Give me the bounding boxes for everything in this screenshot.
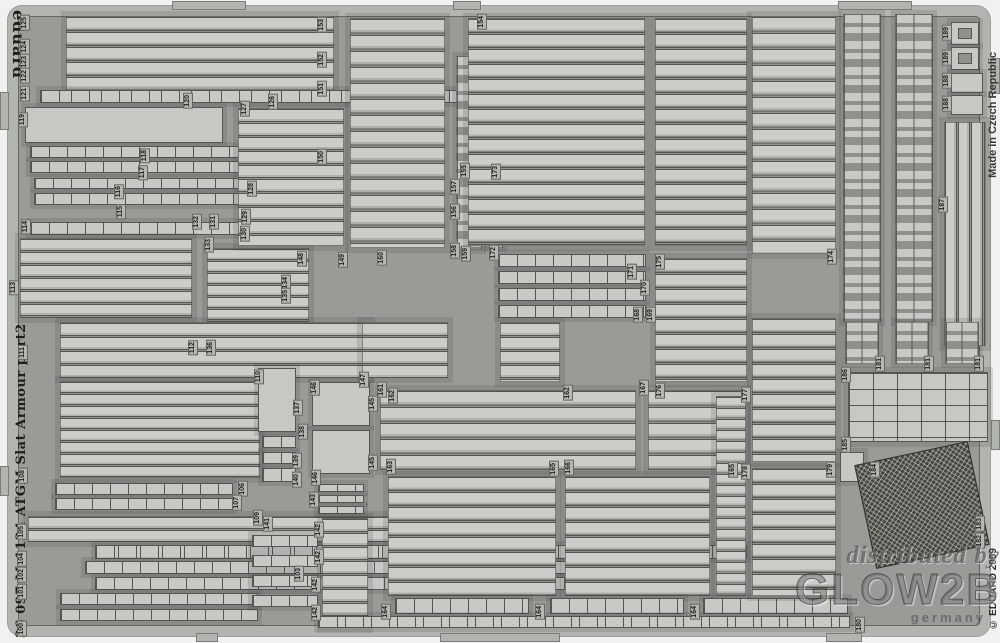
part-number-label: 130 xyxy=(240,226,250,242)
part-number-label: 162 xyxy=(563,385,573,401)
part-number-label: 160 xyxy=(377,250,387,266)
part-number-label: 153 xyxy=(317,17,327,33)
part-number-label: 145 xyxy=(368,455,378,471)
labels-layer: 1251241231221211201191181171161151141131… xyxy=(0,0,1000,643)
part-number-label: 175 xyxy=(655,254,665,270)
part-number-label: 121 xyxy=(20,86,30,102)
part-number-label: 147 xyxy=(359,372,369,388)
part-number-label: 117 xyxy=(138,165,148,180)
part-number-label: 131 xyxy=(209,214,219,230)
part-number-label: 164 xyxy=(535,604,545,620)
part-number-label: 181 xyxy=(974,356,984,372)
part-number-label: 115 xyxy=(116,204,126,219)
part-number-label: 161 xyxy=(377,382,387,398)
part-number-label: 146 xyxy=(311,470,321,486)
part-number-label: 184 xyxy=(870,462,880,478)
part-number-label: 128 xyxy=(247,181,257,197)
part-number-label: 114 xyxy=(21,219,31,234)
part-number-label: 180 xyxy=(855,617,865,633)
part-number-label: 143 xyxy=(309,492,319,508)
part-number-label: 100 xyxy=(17,621,27,637)
part-number-label: 135 xyxy=(281,288,291,304)
part-number-label: 155 xyxy=(460,163,470,179)
part-number-label: 104 xyxy=(17,551,27,567)
part-number-label: 146 xyxy=(310,380,320,396)
part-number-label: 118 xyxy=(140,148,150,163)
part-number-label: 189 xyxy=(942,50,952,66)
part-number-label: 188 xyxy=(942,96,952,112)
part-number-label: 105 xyxy=(17,524,27,540)
part-number-label: 127 xyxy=(240,101,250,117)
part-number-label: 181 xyxy=(924,356,934,372)
part-number-label: 157 xyxy=(450,179,460,195)
part-number-label: 142 xyxy=(311,577,321,593)
part-number-label: 120 xyxy=(183,93,193,109)
part-number-label: 129 xyxy=(241,209,251,225)
part-number-label: 183 xyxy=(975,516,985,532)
part-number-label: 101 xyxy=(17,584,27,600)
part-number-label: 148 xyxy=(297,251,307,267)
part-number-label: 102 xyxy=(17,567,27,583)
part-number-label: 169 xyxy=(646,307,656,323)
part-number-label: 188 xyxy=(942,73,952,89)
part-number-label: 119 xyxy=(18,112,28,127)
part-number-label: 158 xyxy=(450,243,460,259)
part-number-label: 173 xyxy=(491,164,501,180)
part-number-label: 152 xyxy=(317,52,327,68)
part-number-label: 176 xyxy=(655,383,665,399)
part-number-label: 164 xyxy=(381,604,391,620)
part-number-label: 137 xyxy=(293,400,303,416)
part-number-label: 179 xyxy=(826,462,836,478)
part-number-label: 159 xyxy=(461,246,471,262)
part-number-label: 112 xyxy=(188,340,198,355)
part-number-label: 133 xyxy=(204,237,214,253)
part-number-label: 116 xyxy=(114,184,124,199)
part-number-label: 110 xyxy=(254,369,264,384)
part-number-label: 174 xyxy=(827,249,837,265)
part-number-label: 145 xyxy=(368,396,378,412)
part-number-label: 164 xyxy=(690,604,700,620)
part-number-label: 109 xyxy=(253,510,263,526)
part-number-label: 113 xyxy=(9,280,19,295)
part-number-label: 108 xyxy=(18,468,28,484)
part-number-label: 171 xyxy=(627,264,637,280)
part-number-label: 150 xyxy=(317,149,327,165)
part-number-label: 189 xyxy=(942,25,952,41)
part-number-label: 136 xyxy=(206,340,216,356)
part-number-label: 138 xyxy=(298,424,308,440)
part-number-label: 166 xyxy=(564,460,574,476)
part-number-label: 142 xyxy=(314,549,324,565)
part-number-label: 167 xyxy=(639,380,649,396)
part-number-label: 122 xyxy=(20,68,30,84)
part-number-label: 149 xyxy=(338,252,348,268)
made-in-text: Made in Czech Republic xyxy=(987,52,999,178)
part-number-label: 103 xyxy=(294,566,304,582)
part-number-label: 178 xyxy=(741,464,751,480)
part-number-label: 154 xyxy=(477,14,487,30)
part-number-label: 168 xyxy=(633,307,643,323)
part-number-label: 124 xyxy=(20,39,30,55)
part-number-label: 182 xyxy=(975,533,985,549)
part-number-label: 156 xyxy=(450,204,460,220)
part-number-label: 185 xyxy=(841,437,851,453)
part-number-label: 151 xyxy=(317,81,327,97)
part-number-label: 142 xyxy=(314,522,324,538)
part-number-label: 111 xyxy=(18,345,28,360)
part-number-label: 172 xyxy=(489,245,499,261)
part-number-label: 181 xyxy=(875,356,885,372)
part-number-label: 139 xyxy=(292,453,302,469)
copyright-text: © EDUARD 2009 xyxy=(988,548,999,630)
part-number-label: 132 xyxy=(192,214,202,230)
part-number-label: 165 xyxy=(728,462,738,478)
part-number-label: 107 xyxy=(232,495,242,511)
part-number-label: 186 xyxy=(841,367,851,383)
part-number-label: 125 xyxy=(20,15,30,31)
part-number-label: 187 xyxy=(938,197,948,213)
part-number-label: 126 xyxy=(268,94,278,110)
part-number-label: 140 xyxy=(292,472,302,488)
part-number-label: 177 xyxy=(741,387,751,403)
part-number-label: 165 xyxy=(549,461,559,477)
part-number-label: 142 xyxy=(311,605,321,621)
part-number-label: 141 xyxy=(263,516,273,532)
part-number-label: 163 xyxy=(386,459,396,475)
part-number-label: 162 xyxy=(388,388,398,404)
photoetch-sheet-photo: 1251241231221211201191181171161151141131… xyxy=(0,0,1000,643)
part-number-label: 170 xyxy=(640,280,650,296)
